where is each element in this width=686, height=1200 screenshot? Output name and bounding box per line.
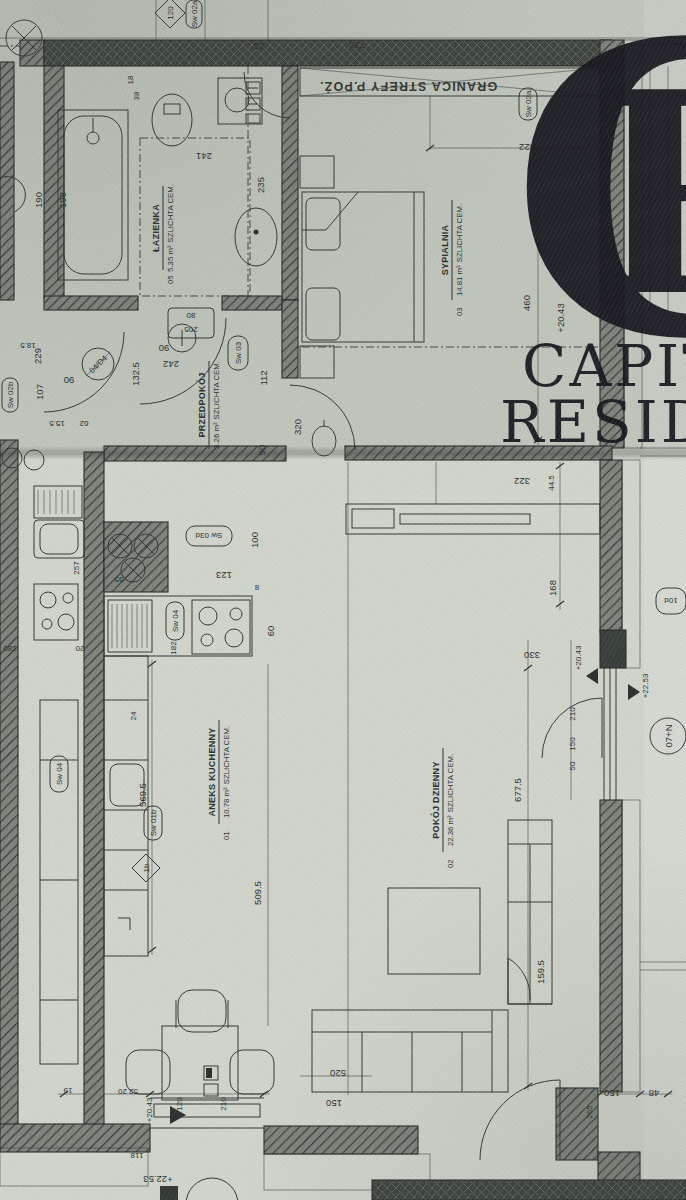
svg-text:107: 107 (34, 384, 45, 400)
chair (230, 1050, 274, 1094)
svg-text:14.81 m²SZLICHTA CEM.: 14.81 m²SZLICHTA CEM. (455, 204, 464, 296)
svg-text:24: 24 (129, 711, 138, 720)
svg-text:330: 330 (524, 650, 540, 661)
svg-text:509.5: 509.5 (252, 881, 263, 905)
svg-text:19: 19 (63, 1086, 72, 1095)
watermark: C R CAPITAL RESIDENCE (500, 0, 686, 456)
svg-text:735: 735 (349, 40, 365, 51)
bathtub (58, 110, 128, 280)
svg-text:235: 235 (255, 177, 266, 193)
axis-circle-bottom (186, 1178, 238, 1200)
room-label-living: POKÓJ DZIENNY 22.36 m²SZLICHTA CEM. 02 (430, 748, 455, 868)
tag: Sw 03d (196, 531, 223, 540)
tag: Sw 04 (55, 762, 64, 785)
svg-text:8: 8 (254, 583, 259, 592)
bed (302, 192, 424, 342)
dining-set (126, 990, 274, 1100)
svg-text:569.5: 569.5 (137, 783, 148, 807)
neighbour-counter (40, 700, 78, 1064)
room-label-kitchen: ANEKS KUCHENNY 10.78 m²SZLICHTA CEM. 01 (207, 720, 231, 840)
svg-text:50: 50 (568, 761, 577, 770)
stove (192, 600, 250, 654)
tag: Sw 02a (190, 0, 199, 27)
svg-text:265: 265 (585, 1105, 594, 1119)
room-labels: ŁAZIENKA 5.35 m²SZLICHTA CEM. 05 SYPIALN… (151, 79, 497, 868)
fire-boundary-label: GRANICA STREFY P.POŻ. (319, 79, 497, 94)
svg-text:55: 55 (114, 575, 123, 584)
svg-text:3.26 m²SZLICHTA CEM.: 3.26 m²SZLICHTA CEM. (212, 361, 221, 449)
floorplan-drawing: 07+N ŁAZIENKA 5.35 m²SZLICHTA CEM. 05 SY… (0, 0, 686, 1200)
svg-text:677.5: 677.5 (512, 778, 523, 802)
washing-machine (218, 78, 262, 124)
room-label-hall: PRZEDPOKÓJ 3.26 m²SZLICHTA CEM. (196, 361, 221, 449)
tag: Sw 02b (6, 381, 15, 408)
svg-text:38: 38 (132, 91, 141, 100)
svg-text:90: 90 (64, 375, 75, 386)
tag: Sw 01b (149, 809, 158, 836)
svg-text:112: 112 (258, 370, 269, 385)
svg-text:18.5: 18.5 (20, 341, 36, 350)
svg-text:120: 120 (175, 1097, 184, 1111)
pillow (306, 198, 340, 250)
bedroom-door-arc (290, 385, 355, 450)
svg-text:90: 90 (159, 343, 170, 354)
door-tag: 04/D4 (88, 353, 110, 375)
svg-text:+20.43: +20.43 (145, 1097, 154, 1122)
balcony-door-right (586, 668, 640, 800)
neighbour-stove (34, 584, 78, 640)
svg-text:02: 02 (446, 859, 455, 868)
svg-text:ŁAZIENKA: ŁAZIENKA (151, 204, 161, 252)
svg-text:168: 168 (547, 580, 558, 596)
svg-text:123: 123 (216, 570, 232, 581)
coffee-table (388, 888, 480, 974)
svg-text:322: 322 (514, 476, 530, 487)
shelf-unit (346, 504, 600, 534)
svg-text:18: 18 (126, 75, 135, 84)
svg-text:242: 242 (163, 359, 179, 370)
svg-text:241: 241 (196, 151, 212, 162)
svg-text:320: 320 (292, 419, 303, 435)
svg-text:180: 180 (3, 644, 17, 653)
svg-text:+20.43: +20.43 (574, 645, 583, 670)
nightstand (300, 156, 334, 188)
svg-text:03: 03 (455, 307, 464, 316)
svg-text:+22.53: +22.53 (143, 1174, 172, 1185)
svg-text:SYPIALNIA: SYPIALNIA (440, 224, 450, 275)
svg-text:520: 520 (330, 1068, 346, 1079)
photo-stitch-seam (0, 446, 686, 460)
dishwasher (108, 600, 152, 652)
svg-text:48: 48 (649, 1088, 660, 1099)
svg-text:15.5: 15.5 (49, 419, 65, 428)
door-size-tag: 205 (184, 325, 198, 334)
svg-text:5.35 m²SZLICHTA CEM.: 5.35 m²SZLICHTA CEM. (166, 184, 175, 272)
svg-text:22.36 m²SZLICHTA CEM.: 22.36 m²SZLICHTA CEM. (446, 754, 455, 846)
svg-text:23: 23 (254, 41, 265, 52)
svg-text:52 20: 52 20 (117, 1087, 138, 1096)
nightstand (300, 346, 334, 378)
tag: 120 (166, 6, 175, 20)
svg-text:210: 210 (568, 707, 577, 721)
room-label-bedroom: SYPIALNIA 14.81 m²SZLICHTA CEM. 03 (440, 200, 464, 316)
svg-text:GRANICA STREFY P.POŻ.: GRANICA STREFY P.POŻ. (319, 79, 497, 94)
svg-text:257: 257 (72, 561, 81, 575)
svg-text:62: 62 (79, 419, 88, 428)
tag: Sw 04 (171, 609, 180, 632)
pillow (306, 288, 340, 340)
svg-text:150: 150 (326, 1098, 342, 1109)
tag: Sw 03 (234, 341, 243, 364)
svg-text:+22.53: +22.53 (641, 673, 650, 698)
logo-monogram-r: R (590, 31, 686, 358)
svg-text:ANEKS KUCHENNY: ANEKS KUCHENNY (207, 727, 217, 816)
svg-text:20: 20 (75, 644, 84, 653)
dining-table (162, 1026, 238, 1100)
svg-text:44.5: 44.5 (547, 475, 556, 491)
svg-text:01: 01 (222, 831, 231, 840)
balcony-door-bottom (150, 1066, 264, 1128)
svg-text:118: 118 (130, 1151, 143, 1160)
corner-cabinet (118, 918, 130, 930)
svg-text:132.5: 132.5 (130, 362, 141, 386)
svg-text:100: 100 (249, 532, 260, 548)
svg-text:PRZEDPOKÓJ: PRZEDPOKÓJ (196, 372, 207, 437)
svg-text:190: 190 (33, 192, 44, 208)
svg-text:05: 05 (166, 275, 175, 284)
bathroom-sink (235, 208, 277, 266)
living-furniture (126, 504, 600, 1100)
svg-text:60: 60 (265, 626, 276, 637)
svg-text:210: 210 (219, 1097, 228, 1111)
axis-label: 07+N (663, 724, 674, 747)
svg-text:198: 198 (57, 192, 68, 208)
tag: 10d (664, 596, 677, 605)
floorplan-photo: 07+N ŁAZIENKA 5.35 m²SZLICHTA CEM. 05 SY… (0, 0, 686, 1200)
tag: 1b (142, 863, 151, 872)
svg-text:150: 150 (604, 1088, 620, 1099)
svg-text:10.78 m²SZLICHTA CEM.: 10.78 m²SZLICHTA CEM. (222, 726, 231, 818)
svg-text:159.5: 159.5 (535, 960, 546, 984)
door-size-tag: 80 (186, 311, 195, 320)
svg-text:182: 182 (169, 641, 178, 655)
room-label-bathroom: ŁAZIENKA 5.35 m²SZLICHTA CEM. 05 (151, 184, 175, 284)
svg-text:150: 150 (568, 737, 577, 751)
svg-text:POKÓJ DZIENNY: POKÓJ DZIENNY (430, 761, 441, 838)
